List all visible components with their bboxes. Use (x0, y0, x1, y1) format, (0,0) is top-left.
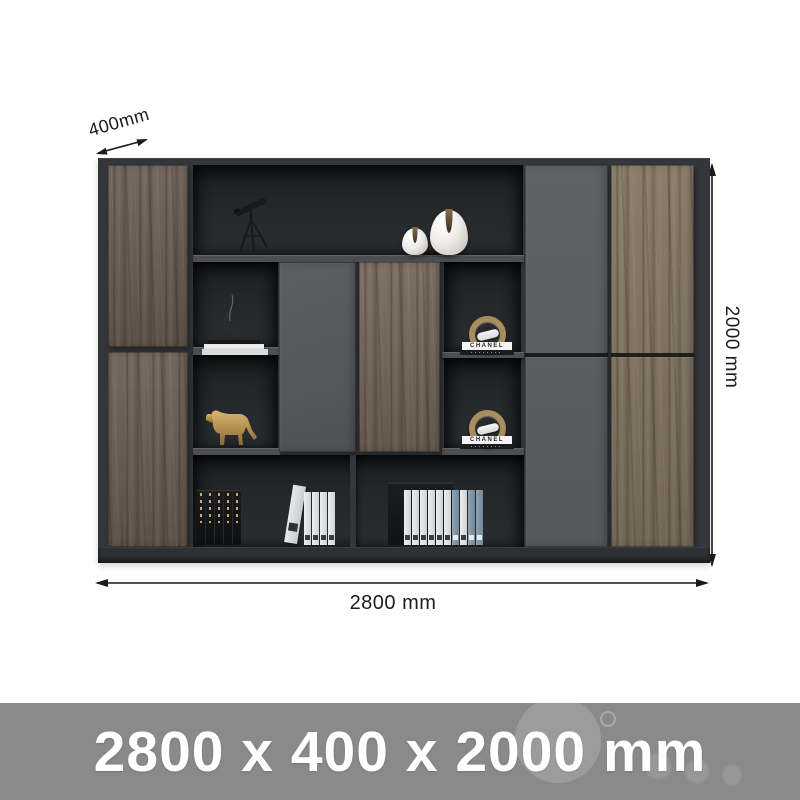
shelf (193, 255, 524, 262)
vase-pattern (413, 227, 418, 243)
wood-door-center (359, 262, 440, 452)
binder (420, 490, 427, 545)
white-vase-small (402, 228, 428, 255)
wood-door-left-lower (108, 352, 188, 547)
binder (328, 492, 335, 545)
binder (304, 492, 311, 545)
width-dimension-label: 2800 mm (333, 592, 453, 615)
binder (452, 490, 459, 545)
chanel-decor-upper: CHANEL (460, 314, 514, 354)
book (197, 490, 205, 545)
vase-pattern (446, 209, 453, 233)
product-image: 400mm 2000 mm 2800 mm (0, 0, 800, 800)
binder (404, 490, 411, 545)
cabinet-base (98, 547, 710, 563)
size-banner: 2800 x 400 x 2000 mm (0, 703, 800, 800)
height-dimension-label: 2000 mm (720, 292, 742, 402)
blue-binder-row (404, 490, 490, 545)
book (233, 490, 241, 545)
binder (460, 490, 467, 545)
chanel-decor-lower: CHANEL (460, 408, 514, 448)
watermark-dot (722, 765, 742, 785)
watermark-ring (600, 711, 616, 727)
book-stack (202, 340, 268, 355)
gold-horse-figurine (202, 404, 260, 448)
watermark-dot (645, 753, 671, 779)
wood-door-left-upper (108, 165, 188, 347)
gray-door-center-left (279, 262, 356, 452)
door-seam (611, 353, 694, 357)
black-book-row (197, 490, 245, 545)
book-label (288, 523, 298, 532)
banner-size-text: 2800 x 400 x 2000 mm (94, 719, 707, 785)
gray-door-right (525, 165, 608, 547)
book (224, 490, 232, 545)
binder (436, 490, 443, 545)
binder (312, 492, 319, 545)
book (215, 490, 223, 545)
watermark-dot (685, 759, 709, 783)
depth-dimension-arrow (86, 130, 158, 160)
dark-book (460, 350, 514, 355)
bookcase-cabinet: CHANEL CHANEL (98, 158, 710, 563)
shelf (442, 448, 524, 455)
chanel-book: CHANEL (462, 342, 512, 350)
wood-door-right (611, 165, 694, 547)
telescope-figurine (234, 188, 276, 256)
shelf (193, 448, 280, 455)
dark-book (460, 444, 514, 449)
book (202, 349, 268, 355)
binder (476, 490, 483, 545)
bottom-compartment-divider (350, 455, 356, 547)
binder (320, 492, 327, 545)
binder (468, 490, 475, 545)
abstract-sculpture (214, 292, 248, 342)
binder (428, 490, 435, 545)
book (206, 490, 214, 545)
binder (444, 490, 451, 545)
white-binder-row (304, 492, 338, 545)
door-seam (525, 353, 608, 357)
chanel-book: CHANEL (462, 436, 512, 444)
width-dimension-arrow (88, 574, 716, 594)
binder (412, 490, 419, 545)
